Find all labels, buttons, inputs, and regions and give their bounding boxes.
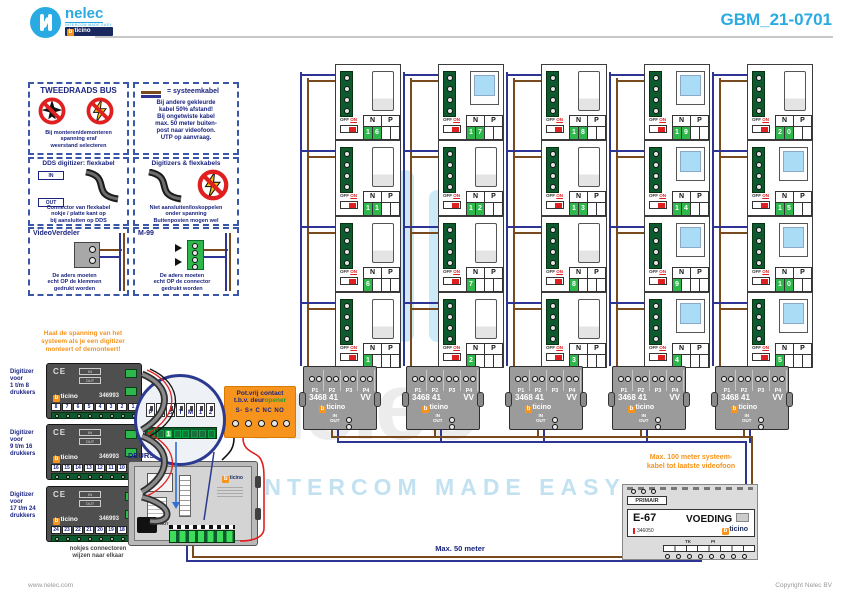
audio-handset: [475, 223, 497, 263]
np-table: NP5: [775, 343, 812, 368]
digitizer-label: Digitizervoor1 t/m 8drukkers: [10, 369, 44, 397]
unit-stub-blue: [403, 74, 442, 76]
np-table: NP7: [466, 267, 503, 292]
unit-number-cell: 1: [673, 127, 682, 139]
unit-number-cell: 7: [476, 127, 485, 139]
riser-wire-brown: [719, 78, 721, 366]
jumper-cell: [174, 430, 181, 438]
flex-connector: [137, 517, 157, 533]
info-caption: Niet aansluiten/loskoppelenonder spannin…: [137, 205, 235, 224]
in-out-labels: INOUT: [536, 413, 546, 423]
off-on-label: OFF ON: [546, 269, 563, 274]
pushbutton-slot: 16: [51, 464, 61, 472]
brand-name: nelec: [65, 5, 103, 23]
audio-handset: [372, 299, 394, 339]
unit-number-cell: 2: [476, 203, 485, 215]
audio-handset: [475, 147, 497, 187]
riser-wire-brown: [616, 78, 618, 366]
off-on-switch: [443, 353, 461, 361]
pushbutton-slot: 8: [51, 403, 61, 411]
in-out-labels: INOUT: [639, 413, 649, 423]
port-P4: P4: [358, 370, 375, 391]
flex-socket: [125, 369, 137, 378]
info-caption: Connector van flexkabelnokje / platte ka…: [32, 205, 125, 224]
mounting-ear: [580, 392, 587, 407]
primair-label: PRIMAIR: [627, 496, 667, 505]
inset-terminal: 1: [196, 403, 205, 417]
off-on-label: OFF ON: [443, 345, 460, 350]
np-table: NP15: [775, 191, 812, 216]
psu-faceplate: E-67 346050 VOEDING bticino: [627, 509, 755, 537]
riser-wire-brown: [410, 78, 412, 366]
bticino-logo: bticino: [53, 393, 78, 402]
intercom-unit: OFF ONNP11: [335, 140, 401, 216]
digitizer-label: Digitizervoor9 t/m 16drukkers: [10, 430, 44, 458]
door-label-text: [217, 485, 243, 497]
off-on-switch: [443, 277, 461, 285]
inset-terminal: N: [156, 403, 165, 417]
off-on-switch: [340, 353, 358, 361]
unit-number-cell: 6: [373, 127, 382, 139]
np-table: NP18: [569, 115, 606, 140]
empty-cell: [803, 127, 811, 139]
pushbutton-slot: 11: [106, 464, 116, 472]
port-P4: P4: [770, 370, 787, 391]
monitor-screen: [680, 227, 701, 248]
unit-terminal-block: [649, 299, 662, 345]
off-on-label: OFF ON: [546, 193, 563, 198]
tk-label: TK: [685, 539, 691, 544]
bticino-logo: bticino: [722, 526, 748, 535]
off-on-label: OFF ON: [546, 345, 563, 350]
unit-terminal-block: [340, 223, 353, 269]
unit-terminal-block: [340, 147, 353, 193]
empty-cell: [803, 279, 811, 291]
empty-cell: [391, 127, 399, 139]
intercom-unit: OFF ONNP7: [438, 216, 504, 292]
port-P1: P1: [410, 370, 427, 391]
chain-bus-brown: [331, 436, 753, 438]
digitizer-terminal-strip: [51, 412, 139, 419]
unit-terminal-block: [649, 223, 662, 269]
off-on-label: OFF ON: [752, 117, 769, 122]
inset-jumper-strip: 1: [145, 427, 217, 439]
off-on-label: OFF ON: [443, 117, 460, 122]
np-table: NP6: [363, 267, 400, 292]
video-monitor: [676, 147, 705, 181]
intercom-unit: OFF ONNP1: [335, 292, 401, 368]
np-table: NP14: [672, 191, 709, 216]
video-distributor: P1P2P3P43468 41VVbticinoINOUT: [612, 366, 686, 430]
unit-terminal-block: [546, 223, 559, 269]
unit-stub-blue: [403, 150, 442, 152]
audio-handset: [372, 147, 394, 187]
black-wire: [222, 438, 234, 460]
intercom-unit: OFF ONNP18: [541, 64, 607, 140]
video-distributor-icon: [74, 242, 100, 268]
info-box-videoverdeler: VideoVerdeler De aders moetenecht OP de …: [28, 227, 129, 296]
unit-terminal-block: [443, 147, 456, 193]
digitizer-label: Digitizervoor17 t/m 24drukkers: [10, 492, 44, 520]
info-box-m99: M-99 De aders moetenecht OP de connector…: [133, 227, 239, 296]
ce-mark: CE: [53, 428, 66, 437]
empty-cell: [597, 279, 605, 291]
unit-stub-blue: [712, 226, 751, 228]
off-on-label: OFF ON: [340, 345, 357, 350]
arrow-icon: [175, 244, 182, 252]
unit-number-cell: 1: [776, 279, 785, 291]
digitizer-module: CEINOUTbticino34699387654321: [46, 363, 142, 419]
unit-number-cell: 8: [570, 279, 579, 291]
riser-wire-brown: [307, 78, 309, 366]
unit-terminal-block: [443, 71, 456, 117]
port-P2: P2: [324, 370, 341, 391]
port-P1: P1: [307, 370, 324, 391]
unit-stub-blue: [712, 150, 751, 152]
bticino-logo: bticino: [525, 404, 551, 413]
video-distributor: P1P2P3P43468 41VVbticinoINOUT: [303, 366, 377, 430]
in-out-labels: INOUT: [160, 516, 168, 526]
np-table: NP19: [672, 115, 709, 140]
contact-terminals: S- S+ C NC NO: [225, 408, 295, 414]
audio-handset: [578, 147, 600, 187]
np-table: NP12: [466, 191, 503, 216]
bticino-brand-bar: bticino: [65, 27, 113, 36]
mounting-ear: [402, 392, 409, 407]
flex-cable-icon: [78, 169, 124, 203]
distributor-model: 3468 41VV: [515, 393, 577, 402]
footer-copyright: Copyright Nelec BV: [775, 582, 832, 589]
bticino-logo: bticino: [53, 454, 78, 463]
door-opener-contact-box: Pot.vrij contact t.b.v. deuropener S- S+…: [224, 386, 296, 438]
bticino-logo: bticino: [628, 404, 654, 413]
off-on-label: OFF ON: [546, 117, 563, 122]
info-title: VideoVerdeler: [30, 230, 127, 237]
off-on-switch: [443, 125, 461, 133]
audio-handset: [578, 223, 600, 263]
off-on-switch: [649, 277, 667, 285]
mounting-tab: [255, 476, 261, 488]
connector-note: nokjes connectorenwijzen naar elkaar: [40, 546, 156, 560]
info-title: M-99: [135, 230, 237, 237]
door-station-panel: bticino INOUT: [134, 466, 252, 541]
intercom-unit: OFF ONNP17: [438, 64, 504, 140]
unit-stub-blue: [506, 74, 545, 76]
mounting-ear: [786, 392, 793, 407]
jumper-cell: [157, 430, 164, 438]
door-drop-brown: [192, 546, 194, 558]
intercom-unit: OFF ONNP6: [335, 216, 401, 292]
empty-cell: [588, 203, 597, 215]
empty-cell: [597, 355, 605, 367]
np-table: NP11: [363, 191, 400, 216]
door-station: bticino INOUT: [128, 461, 258, 546]
unit-number-cell: 1: [364, 203, 373, 215]
port-P3: P3: [650, 370, 667, 391]
bticino-logo: bticino: [53, 516, 78, 525]
in-out-labels: INOUT: [742, 413, 752, 423]
info-caption: De aders moetenecht OP de klemmengedrukt…: [32, 273, 117, 292]
empty-cell: [700, 203, 708, 215]
unit-stub-blue: [506, 150, 545, 152]
info-title: TWEEDRAADS BUS: [30, 86, 127, 95]
off-on-label: OFF ON: [340, 117, 357, 122]
mounting-ear: [374, 392, 381, 407]
empty-cell: [700, 279, 708, 291]
door-display: [147, 473, 173, 492]
door-terminal-strip: [169, 530, 235, 543]
off-on-label: OFF ON: [340, 269, 357, 274]
mounting-ear: [477, 392, 484, 407]
off-on-switch: [649, 201, 667, 209]
port-P1: P1: [719, 370, 736, 391]
off-on-switch: [752, 353, 770, 361]
ce-mark: CE: [53, 490, 66, 499]
np-table: NP3: [569, 343, 606, 368]
pushbutton-slot: 24: [51, 526, 61, 534]
info-caption: Bij andere gekleurdekabel 50% afstand!Bi…: [137, 100, 235, 142]
unit-terminal-block: [340, 71, 353, 117]
jumper-setting: 1: [165, 430, 172, 438]
pushbutton-slot: 12: [95, 464, 105, 472]
off-on-switch: [752, 201, 770, 209]
unit-stub-blue: [609, 74, 648, 76]
intercom-unit: OFF ONNP13: [541, 140, 607, 216]
empty-cell: [691, 127, 700, 139]
unit-number-cell: 1: [364, 127, 373, 139]
pi-label: PI: [711, 539, 715, 544]
unit-terminal-block: [752, 299, 765, 345]
bticino-logo: bticino: [319, 404, 345, 413]
unit-terminal-block: [649, 71, 662, 117]
off-on-label: OFF ON: [443, 193, 460, 198]
empty-cell: [579, 279, 588, 291]
no-lightning-icon: [197, 169, 229, 201]
empty-cell: [391, 279, 399, 291]
port-P3: P3: [444, 370, 461, 391]
pushbutton-slot: 18: [117, 526, 127, 534]
empty-cell: [691, 355, 700, 367]
unit-terminal-block: [752, 71, 765, 117]
off-on-switch: [752, 277, 770, 285]
port-P2: P2: [633, 370, 650, 391]
monitor-screen: [680, 75, 701, 96]
unit-terminal-block: [443, 299, 456, 345]
jumper-cell: [199, 430, 206, 438]
np-table: NP4: [672, 343, 709, 368]
unit-stub-blue: [300, 302, 339, 304]
np-table: NP13: [569, 191, 606, 216]
monitor-screen: [783, 303, 804, 324]
mounting-ear: [608, 392, 615, 407]
unit-stub-blue: [300, 74, 339, 76]
audio-handset: [372, 71, 394, 111]
jumper-cell: [182, 430, 189, 438]
contact-title: Pot.vrij contact: [225, 390, 295, 397]
power-warning-note: Haal de spanning van hetsysteem als je e…: [18, 330, 148, 354]
inset-terminal: S: [166, 403, 175, 417]
off-on-label: OFF ON: [649, 345, 666, 350]
video-distributor: P1P2P3P43468 41VVbticinoINOUT: [509, 366, 583, 430]
empty-cell: [588, 127, 597, 139]
intercom-unit: OFF ONNP20: [747, 64, 813, 140]
audio-handset: [784, 71, 806, 111]
video-monitor: [779, 147, 808, 181]
empty-cell: [485, 203, 494, 215]
diagram-canvas: nelec INTERCOM MADE EASY nelec INTERCOM …: [0, 0, 841, 595]
digitizer-model: 346993: [99, 393, 119, 399]
header-divider: [95, 36, 833, 38]
unit-terminal-block: [340, 299, 353, 345]
empty-cell: [494, 127, 502, 139]
distributor-model: 3468 41VV: [309, 393, 371, 402]
empty-cell: [794, 355, 803, 367]
ce-mark: CE: [53, 367, 66, 376]
pushbutton-slot: 20: [95, 526, 105, 534]
np-table: NP20: [775, 115, 812, 140]
bticino-logo: bticino: [67, 28, 91, 34]
off-on-switch: [546, 125, 564, 133]
green-connector-icon: [187, 240, 204, 270]
off-on-label: OFF ON: [649, 117, 666, 122]
empty-cell: [494, 279, 502, 291]
mounting-tab: [255, 508, 261, 520]
unit-number-cell: 8: [579, 127, 588, 139]
unit-terminal-block: [649, 147, 662, 193]
monitor-screen: [783, 151, 804, 172]
empty-cell: [382, 127, 391, 139]
off-on-label: OFF ON: [752, 193, 769, 198]
port-P2: P2: [530, 370, 547, 391]
watermark-tagline: INTERCOM MADE EASY: [252, 474, 626, 501]
unit-number-cell: 1: [570, 127, 579, 139]
port-P4: P4: [461, 370, 478, 391]
unit-number-cell: 7: [467, 279, 476, 291]
unit-stub-blue: [609, 226, 648, 228]
empty-cell: [588, 279, 597, 291]
bticino-logo: bticino: [422, 404, 448, 413]
off-on-label: OFF ON: [752, 269, 769, 274]
contact-subtitle: t.b.v. deuropener: [225, 397, 295, 404]
unit-number-cell: 2: [776, 127, 785, 139]
intercom-unit: OFF ONNP9: [644, 216, 710, 292]
pushbutton-slot: 19: [106, 526, 116, 534]
empty-cell: [794, 279, 803, 291]
intercom-unit: OFF ONNP2: [438, 292, 504, 368]
intercom-unit: OFF ONNP10: [747, 216, 813, 292]
empty-cell: [803, 203, 811, 215]
port-P2: P2: [427, 370, 444, 391]
distributor-model: 3468 41VV: [618, 393, 680, 402]
info-box-systeemkabel: = systeemkabel Bij andere gekleurdekabel…: [133, 82, 239, 155]
chain-bus-blue: [337, 441, 747, 443]
pushbutton-slot: 7: [62, 403, 72, 411]
np-table: NP1: [363, 343, 400, 368]
arrow-icon: [175, 258, 182, 266]
digitizer-terminal-strip: [51, 535, 139, 542]
pushbutton-slot: 10: [117, 464, 127, 472]
np-table: NP9: [672, 267, 709, 292]
flex-socket: [125, 387, 137, 396]
no-lightning-icon: [86, 97, 114, 125]
page-title: GBM_21-0701: [720, 10, 832, 30]
port-P4: P4: [564, 370, 581, 391]
pushbutton-slot: 3: [106, 403, 116, 411]
audio-handset: [372, 223, 394, 263]
intercom-unit: OFF ONNP5: [747, 292, 813, 368]
unit-number-cell: 1: [776, 203, 785, 215]
port-P3: P3: [547, 370, 564, 391]
unit-terminal-block: [546, 299, 559, 345]
unit-number-cell: 1: [673, 203, 682, 215]
unit-terminal-block: [752, 147, 765, 193]
unit-number-cell: 1: [467, 203, 476, 215]
distributor-model: 3468 41VV: [721, 393, 783, 402]
video-distributor: P1P2P3P43468 41VVbticinoINOUT: [406, 366, 480, 430]
psu-model: E-67: [633, 512, 656, 524]
np-table: NP16: [363, 115, 400, 140]
jumper-cell: [148, 430, 155, 438]
in-out-diagram-icon: IN OUT: [38, 171, 64, 207]
unit-terminal-block: [752, 223, 765, 269]
power-supply: PRIMAIR E-67 346050 VOEDING bticino TK P…: [622, 484, 758, 560]
np-table: NP10: [775, 267, 812, 292]
pushbutton-slot: 15: [62, 464, 72, 472]
inset-terminal: 2: [206, 403, 215, 417]
digitizer-model: 346993: [99, 454, 119, 460]
terminal-label-row: [169, 525, 235, 529]
pushbutton-slot: 13: [84, 464, 94, 472]
np-table: NP8: [569, 267, 606, 292]
off-on-switch: [546, 201, 564, 209]
unit-number-cell: 1: [570, 203, 579, 215]
unit-stub-blue: [712, 302, 751, 304]
empty-cell: [700, 355, 708, 367]
empty-cell: [382, 355, 391, 367]
pushbutton-slot: 5: [84, 403, 94, 411]
bottom-bus-brown: [192, 556, 696, 558]
riser-wire-brown: [513, 78, 515, 366]
unit-number-cell: 4: [682, 203, 691, 215]
empty-cell: [391, 203, 399, 215]
pushbutton-slot: 6: [73, 403, 83, 411]
inset-terminal: T: [176, 403, 185, 417]
jumper-cell: [208, 430, 215, 438]
audio-handset: [578, 71, 600, 111]
video-monitor: [676, 71, 705, 105]
off-on-label: OFF ON: [752, 345, 769, 350]
intercom-unit: OFF ONNP4: [644, 292, 710, 368]
video-monitor: [470, 71, 499, 105]
mounting-ear: [505, 392, 512, 407]
bticino-logo: bticino: [222, 475, 243, 483]
mounting-ear: [711, 392, 718, 407]
audio-handset: [475, 299, 497, 339]
video-monitor: [779, 223, 808, 257]
port-P3: P3: [341, 370, 358, 391]
no-plane-icon: [38, 97, 66, 125]
off-on-label: OFF ON: [649, 269, 666, 274]
empty-cell: [391, 355, 399, 367]
bticino-logo: bticino: [731, 404, 757, 413]
monitor-screen: [783, 227, 804, 248]
empty-cell: [485, 355, 494, 367]
video-monitor: [779, 299, 808, 333]
empty-cell: [373, 279, 382, 291]
legend-label: = systeemkabel: [167, 88, 219, 95]
empty-cell: [794, 203, 803, 215]
empty-cell: [588, 355, 597, 367]
